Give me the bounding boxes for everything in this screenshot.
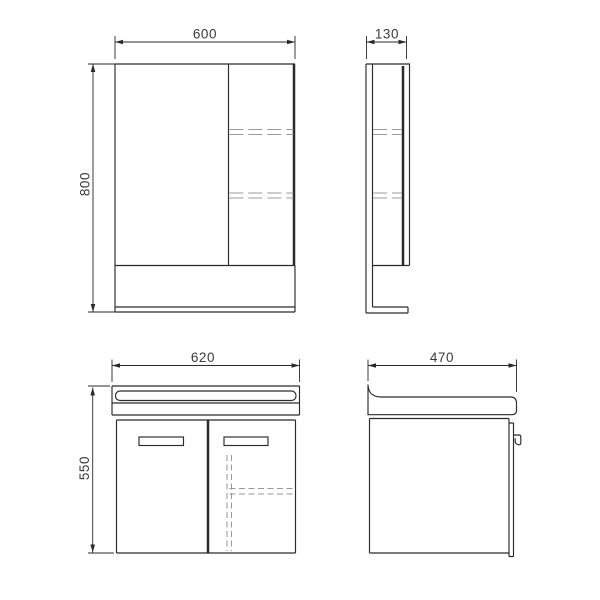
vanity-hidden-divider	[227, 455, 232, 551]
mirror-side-shelf-lines	[373, 130, 402, 199]
vanity-right-door-handle	[224, 437, 268, 446]
vanity-hidden-shelf	[230, 489, 296, 495]
vanity-height-label: 550	[77, 456, 92, 480]
mirror-height-label: 800	[78, 172, 93, 196]
vanity-side-view: 470	[368, 350, 521, 557]
vanity-depth-label: 470	[430, 350, 454, 365]
vanity-width-label: 620	[191, 350, 215, 365]
vanity-side-cabinet	[370, 419, 510, 554]
vanity-side-basin-profile	[368, 385, 517, 415]
dimension-vanity-width: 620	[112, 350, 300, 382]
vanity-left-door-handle	[139, 437, 184, 446]
dimension-mirror-depth: 130	[367, 27, 407, 60]
vanity-side-door	[509, 423, 514, 557]
mirror-front-outline	[115, 64, 295, 312]
dimension-mirror-width: 600	[115, 27, 295, 60]
vanity-basin-rim	[116, 391, 297, 401]
technical-drawing-page: 600 800 130	[0, 0, 600, 600]
dimension-vanity-height: 550	[77, 386, 114, 553]
vanity-side-handle-hook	[514, 435, 521, 445]
dimension-vanity-depth: 470	[368, 350, 517, 392]
vanity-front-view: 620 550	[77, 350, 300, 553]
drawing-canvas: 600 800 130	[0, 0, 600, 600]
dimension-mirror-height: 800	[78, 64, 116, 312]
vanity-cabinet-outline	[117, 420, 296, 553]
mirror-side-back-panel	[366, 64, 373, 313]
mirror-side-foot	[366, 307, 408, 313]
mirror-width-label: 600	[193, 27, 217, 42]
mirror-front-shelf-lines	[229, 130, 293, 199]
mirror-cabinet-front-view: 600 800	[78, 27, 296, 313]
mirror-cabinet-side-view: 130	[366, 27, 410, 314]
mirror-depth-label: 130	[375, 27, 399, 42]
